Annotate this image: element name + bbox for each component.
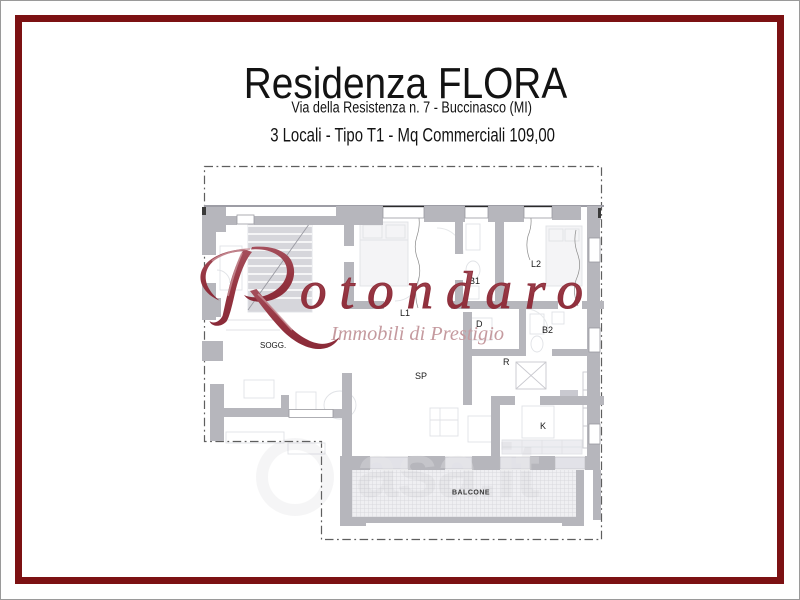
svg-text:Via della Resistenza n. 7 - Bu: Via della Resistenza n. 7 - Buccinasco (… xyxy=(291,100,532,117)
svg-text:R: R xyxy=(503,357,510,367)
svg-text:asa.it: asa.it xyxy=(356,429,540,514)
svg-text:Immobili di Prestigio: Immobili di Prestigio xyxy=(330,323,504,345)
svg-text:3 Locali - Tipo T1 - Mq Commer: 3 Locali - Tipo T1 - Mq Commerciali 109,… xyxy=(270,125,555,146)
svg-text:otondaro: otondaro xyxy=(300,262,583,320)
svg-text:K: K xyxy=(540,421,546,431)
svg-text:B2: B2 xyxy=(542,325,553,335)
svg-text:SOGG.: SOGG. xyxy=(260,341,286,350)
svg-text:SP: SP xyxy=(415,371,427,381)
